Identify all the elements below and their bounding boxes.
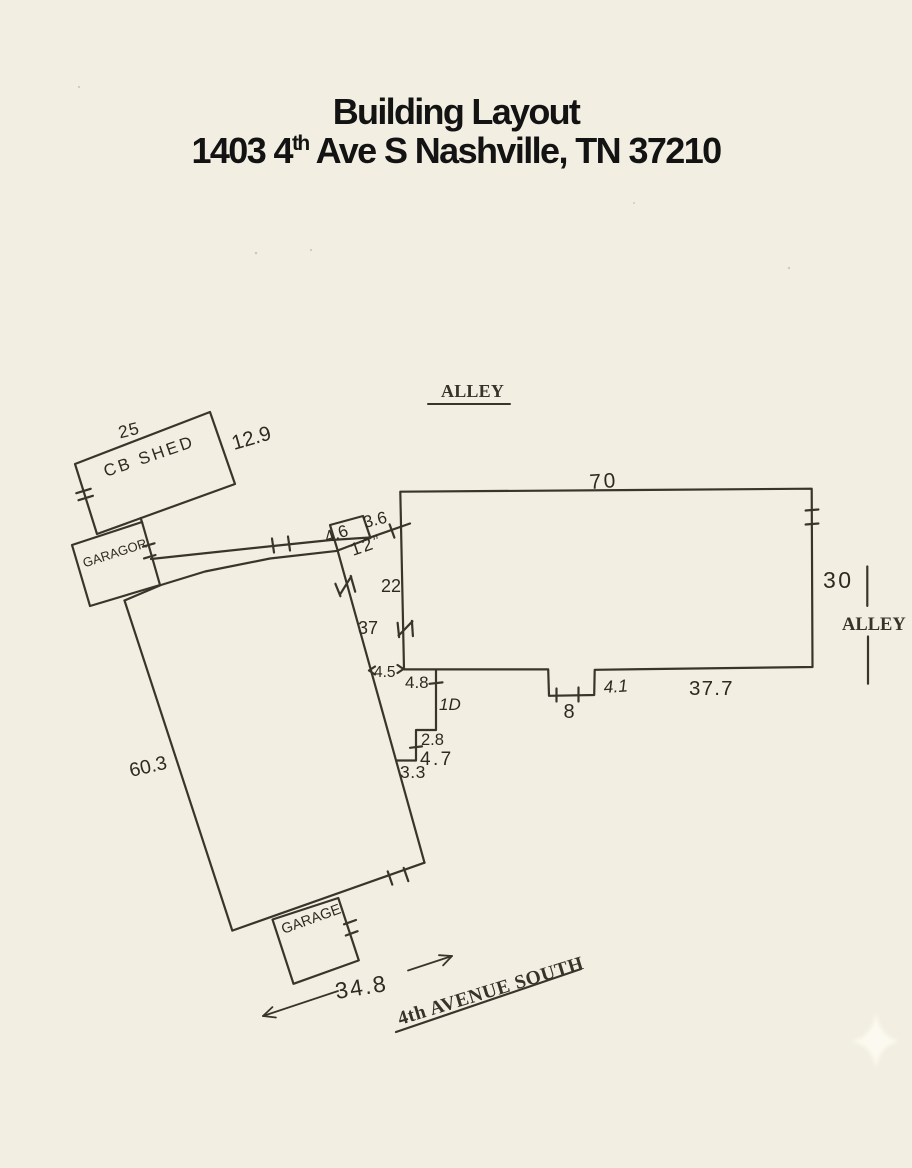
- svg-text:60.3: 60.3: [127, 752, 169, 782]
- svg-text:8: 8: [564, 701, 575, 723]
- svg-text:GARAGOR: GARAGOR: [81, 536, 149, 571]
- svg-text:4.1: 4.1: [603, 675, 629, 697]
- svg-text:22: 22: [381, 576, 401, 596]
- svg-text:3.3: 3.3: [400, 762, 426, 782]
- svg-text:3.6: 3.6: [361, 508, 389, 532]
- svg-text:1D: 1D: [439, 695, 461, 714]
- svg-text:30: 30: [823, 567, 854, 593]
- svg-text:4.6: 4.6: [322, 521, 351, 547]
- svg-text:4.5: 4.5: [374, 664, 396, 681]
- svg-text:ALLEY: ALLEY: [842, 615, 906, 635]
- svg-text:4.8: 4.8: [405, 673, 429, 692]
- svg-text:37.7: 37.7: [689, 677, 734, 700]
- svg-text:ALLEY: ALLEY: [441, 381, 504, 401]
- svg-text:CB SHED: CB SHED: [101, 432, 197, 481]
- svg-text:34.8: 34.8: [333, 970, 389, 1004]
- svg-text:12.9: 12.9: [229, 422, 274, 455]
- svg-text:70: 70: [589, 469, 619, 494]
- svg-text:37: 37: [358, 618, 378, 638]
- svg-text:2.8: 2.8: [421, 731, 444, 749]
- svg-text:12”: 12”: [348, 530, 385, 559]
